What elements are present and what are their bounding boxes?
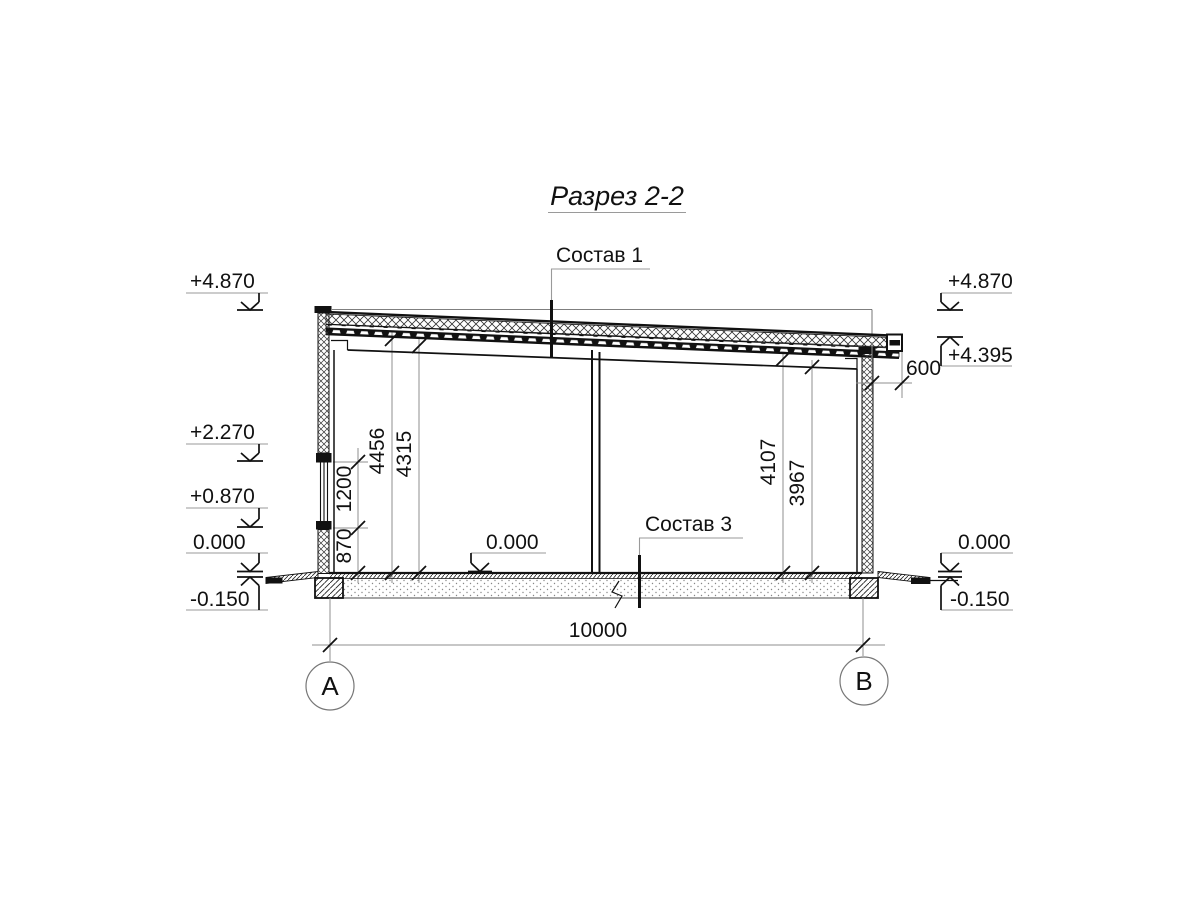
dim-left-to-beam: 4315: [393, 431, 416, 478]
svg-text:-0.150: -0.150: [950, 588, 1010, 611]
window-head: [316, 453, 332, 463]
svg-text:0.000: 0.000: [958, 531, 1011, 554]
svg-text:0.000: 0.000: [486, 531, 539, 554]
roof-fascia-bar: [890, 340, 901, 346]
dim-left-to-deck: 4456: [366, 428, 389, 475]
left-wall-lower-panel: [318, 530, 329, 574]
dim-overall-width: 10000: [569, 619, 627, 642]
dim-right-to-beam: 3967: [786, 460, 809, 507]
left-ground-mark: [266, 578, 283, 584]
dim-overhang: 600: [906, 357, 941, 380]
svg-text:0.000: 0.000: [193, 531, 246, 554]
floor-base-layer: [343, 579, 850, 599]
dim-right-to-deck: 4107: [757, 439, 780, 486]
right-footing: [850, 578, 878, 598]
svg-text:+0.870: +0.870: [190, 485, 255, 508]
section-drawing-svg: Разрез 2-2: [0, 0, 1200, 900]
right-ground-mark: [911, 578, 930, 585]
axis-label-b: В: [855, 666, 872, 696]
left-footing: [315, 578, 343, 598]
dim-window-height: 1200: [333, 466, 356, 513]
drawing-title: Разрез 2-2: [550, 181, 684, 211]
roof-callout-label: Состав 1: [556, 244, 643, 267]
svg-text:+4.870: +4.870: [190, 270, 255, 293]
floor-callout-label: Состав 3: [645, 513, 732, 536]
section-drawing-canvas: Разрез 2-2: [0, 0, 1200, 900]
svg-text:+4.395: +4.395: [948, 344, 1013, 367]
svg-text:+2.270: +2.270: [190, 421, 255, 444]
svg-text:+4.870: +4.870: [948, 270, 1013, 293]
window-sill: [316, 521, 332, 530]
right-wall-top-cap: [859, 347, 876, 354]
svg-text:-0.150: -0.150: [190, 588, 250, 611]
axis-label-a: А: [321, 671, 339, 701]
left-wall-top-cap: [315, 306, 332, 313]
left-wall-upper-panel: [318, 313, 329, 453]
dim-window-sill: 870: [333, 528, 356, 563]
